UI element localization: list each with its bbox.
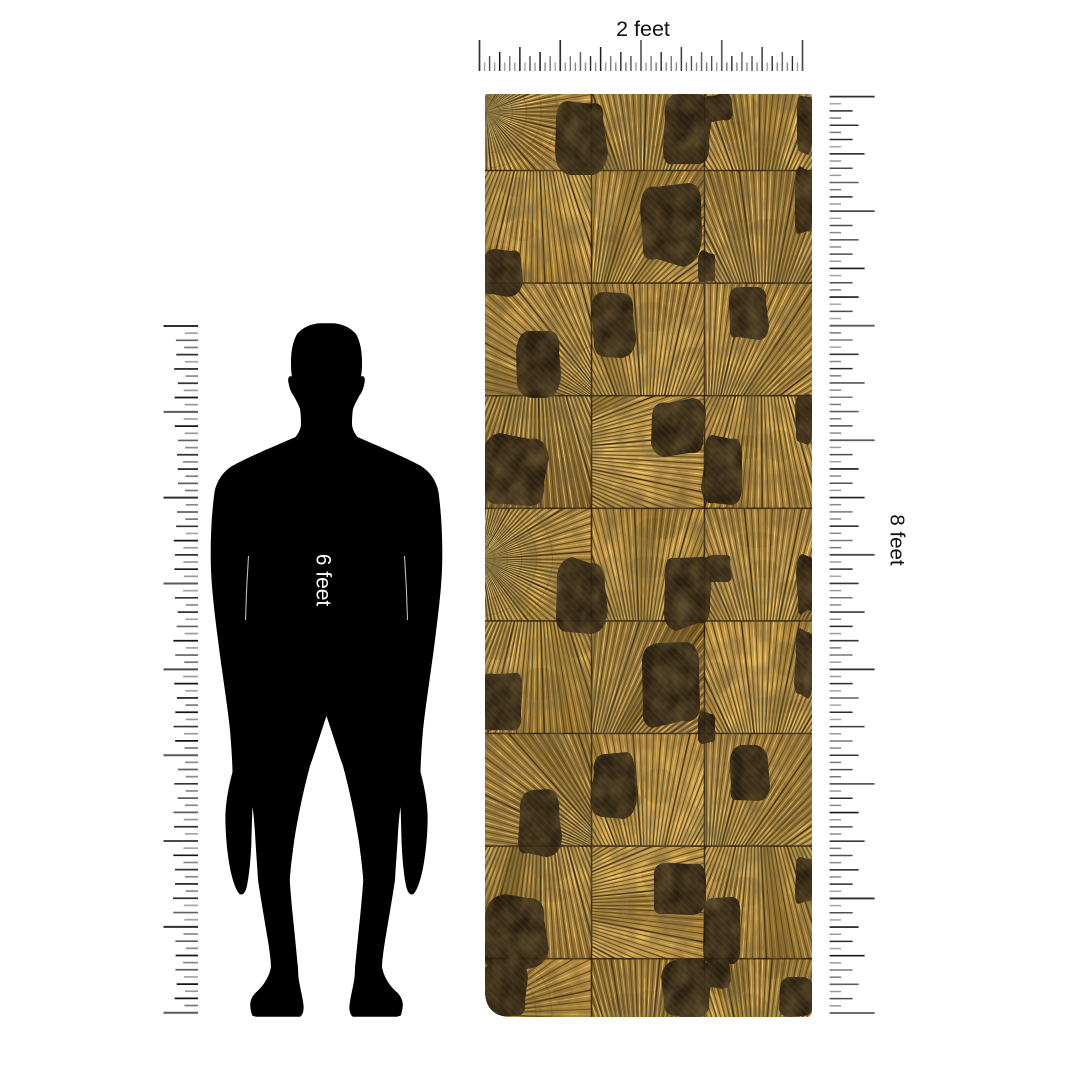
- svg-text:2 feet: 2 feet: [616, 17, 670, 41]
- svg-text:8 feet: 8 feet: [886, 514, 909, 566]
- svg-text:6 feet: 6 feet: [312, 554, 335, 607]
